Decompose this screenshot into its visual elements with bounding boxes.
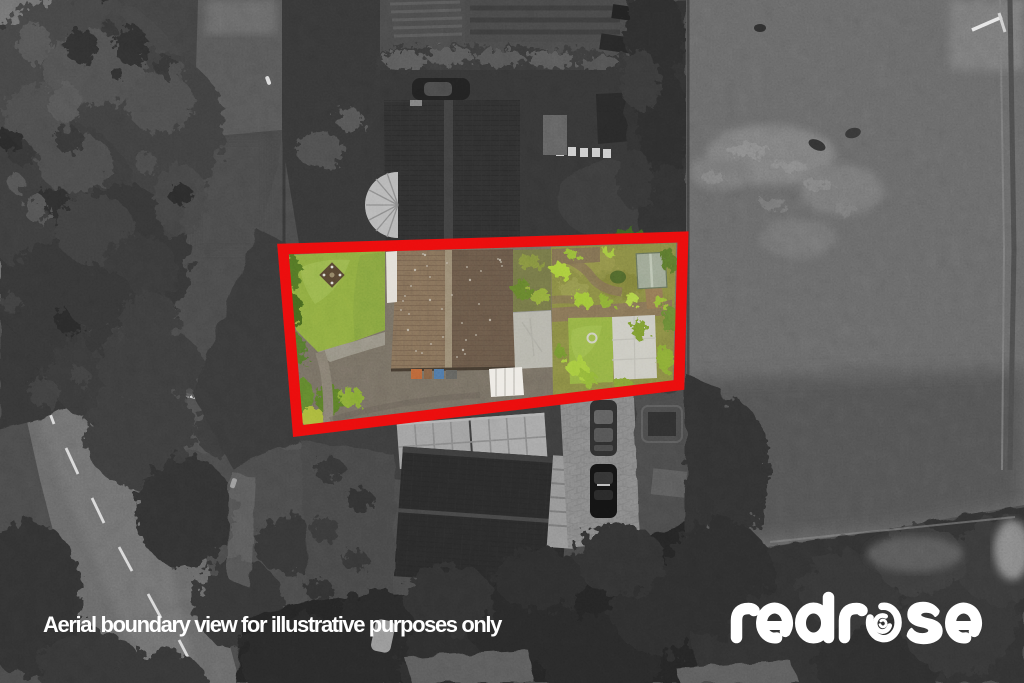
svg-text:Aerial boundary view for illus: Aerial boundary view for illustrative pu… <box>43 612 503 637</box>
